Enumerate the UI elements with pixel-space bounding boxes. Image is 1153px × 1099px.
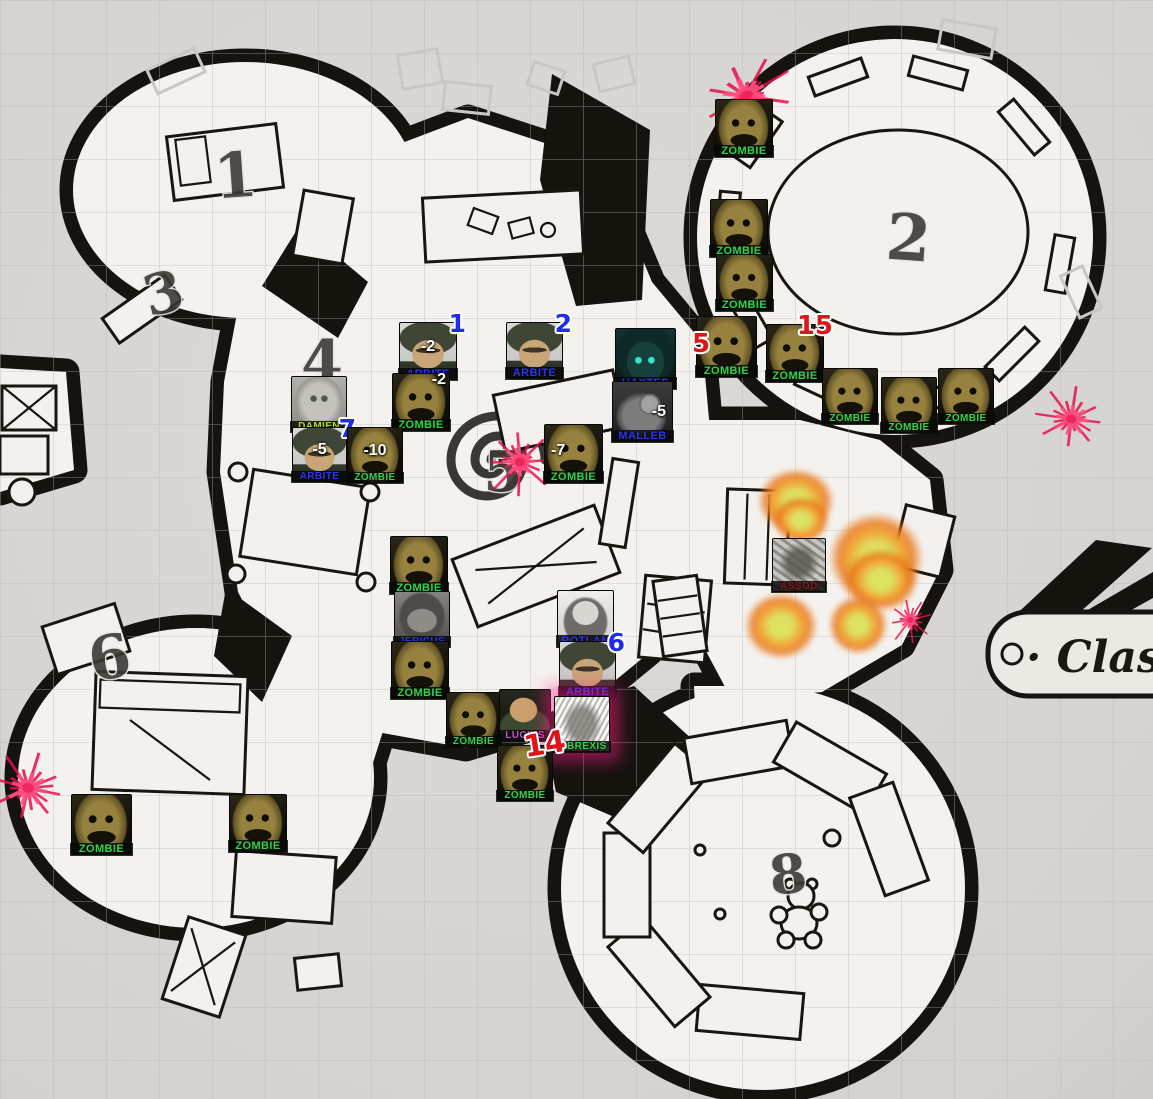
token-arbite-1[interactable]: ARBITE1-2 <box>399 322 457 380</box>
battle-map[interactable]: 1345628 · Clas <box>0 0 1153 1099</box>
token-damage-value: -7 <box>551 442 565 460</box>
token-status-number: 14 <box>522 727 568 763</box>
token-status-number: 1 <box>449 311 466 336</box>
token-zombie-16[interactable]: ZOMBIE <box>71 794 132 855</box>
token-status-number: 5 <box>692 331 710 357</box>
token-zombie-6[interactable]: ZOMBIE <box>822 368 878 424</box>
room-number-2: 2 <box>884 200 934 278</box>
token-zombie-11[interactable]: ZOMBIE-7 <box>544 424 603 483</box>
token-malleb[interactable]: MALLEB-5 <box>612 381 673 442</box>
token-status-number: 15 <box>797 313 833 339</box>
token-zombie-8[interactable]: ZOMBIE <box>938 368 994 424</box>
token-damage-value: -5 <box>652 403 666 421</box>
token-zombie-7[interactable]: ZOMBIE <box>881 377 937 433</box>
token-label: ZOMBIE <box>695 365 758 378</box>
token-label: ZOMBIE <box>937 413 995 425</box>
token-label: ZOMBIE <box>543 471 604 484</box>
token-zombie-1[interactable]: ZOMBIE <box>715 99 773 157</box>
token-label: ZOMBIE <box>714 145 774 158</box>
token-zombie-10[interactable]: ZOMBIE-10 <box>347 427 403 483</box>
room-number-5: 5 <box>484 439 523 505</box>
token-label: ARBITE <box>505 367 564 380</box>
token-label: ZOMBIE <box>821 413 879 425</box>
room-number-1: 1 <box>211 138 259 214</box>
vtt-canvas[interactable]: 1345628 · Clas ZOMBIEZOMBIEZOMBIEZOMBIE5… <box>0 0 1153 1099</box>
token-label: ZOMBIE <box>70 843 133 856</box>
token-label: ZOMBIE <box>496 790 554 802</box>
token-zombie-12[interactable]: ZOMBIE <box>390 536 448 594</box>
token-zombie-4[interactable]: ZOMBIE5 <box>696 316 757 377</box>
banner-text: · Clas <box>1026 632 1153 683</box>
token-label: ZOMBIE <box>715 299 774 312</box>
token-rotlan[interactable]: ROTLAN <box>557 590 614 647</box>
token-status-number: 6 <box>608 630 625 655</box>
room-number-8: 8 <box>766 840 810 908</box>
token-label: ZOMBIE <box>880 422 938 434</box>
token-zombie-3[interactable]: ZOMBIE <box>716 254 773 311</box>
token-label: ZOMBIE <box>765 370 825 383</box>
token-haxtes[interactable]: HAXTES <box>615 328 676 389</box>
token-zombie-15[interactable]: ZOMBIE14 <box>497 745 553 801</box>
token-label: ZOMBIE <box>445 736 502 748</box>
token-label: ZOMBIE <box>228 840 288 853</box>
token-assod[interactable]: ASSOD <box>772 538 826 592</box>
token-zombie-5[interactable]: ZOMBIE15 <box>766 324 824 382</box>
token-label: ZOMBIE <box>346 472 404 484</box>
token-label: ASSOD <box>771 581 827 593</box>
token-zombie-13[interactable]: ZOMBIE <box>391 641 449 699</box>
token-arbite-4[interactable]: ARBITE6 <box>559 641 616 698</box>
token-zombie-17[interactable]: ZOMBIE <box>229 794 287 852</box>
token-arbite-2[interactable]: ARBITE2 <box>506 322 563 379</box>
token-label: MALLEB <box>611 430 674 443</box>
token-label: ARBITE <box>291 471 348 483</box>
token-zombie-9[interactable]: ZOMBIE-2 <box>392 373 450 431</box>
token-damage-value: -2 <box>421 338 435 356</box>
token-zombie-2[interactable]: ZOMBIE <box>710 199 768 257</box>
token-zombie-14[interactable]: ZOMBIE <box>446 692 501 747</box>
token-jericus[interactable]: JERICUS <box>394 591 450 647</box>
token-arbite-3[interactable]: ARBITE7-5 <box>292 427 347 482</box>
token-damage-value: -2 <box>432 371 446 389</box>
token-status-number: 2 <box>555 311 572 336</box>
token-label: ZOMBIE <box>390 687 450 700</box>
token-damage-value: -10 <box>363 442 386 460</box>
token-damage-value: -5 <box>312 441 326 459</box>
